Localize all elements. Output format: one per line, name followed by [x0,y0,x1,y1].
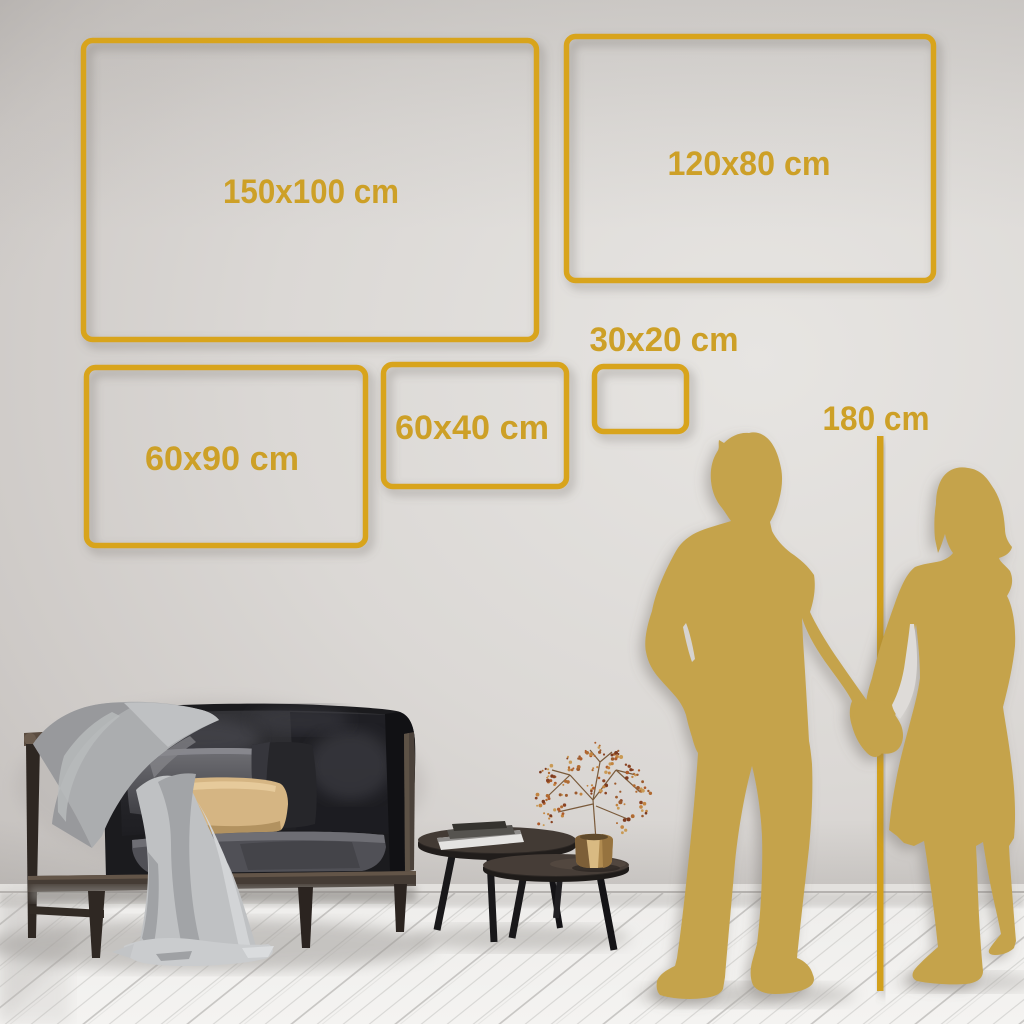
svg-text:60x90 cm: 60x90 cm [145,440,299,478]
svg-text:30x20 cm: 30x20 cm [590,321,739,359]
svg-text:180 cm: 180 cm [823,400,930,438]
svg-text:60x40 cm: 60x40 cm [395,409,549,447]
svg-text:150x100 cm: 150x100 cm [223,173,399,211]
svg-text:120x80 cm: 120x80 cm [668,145,831,183]
